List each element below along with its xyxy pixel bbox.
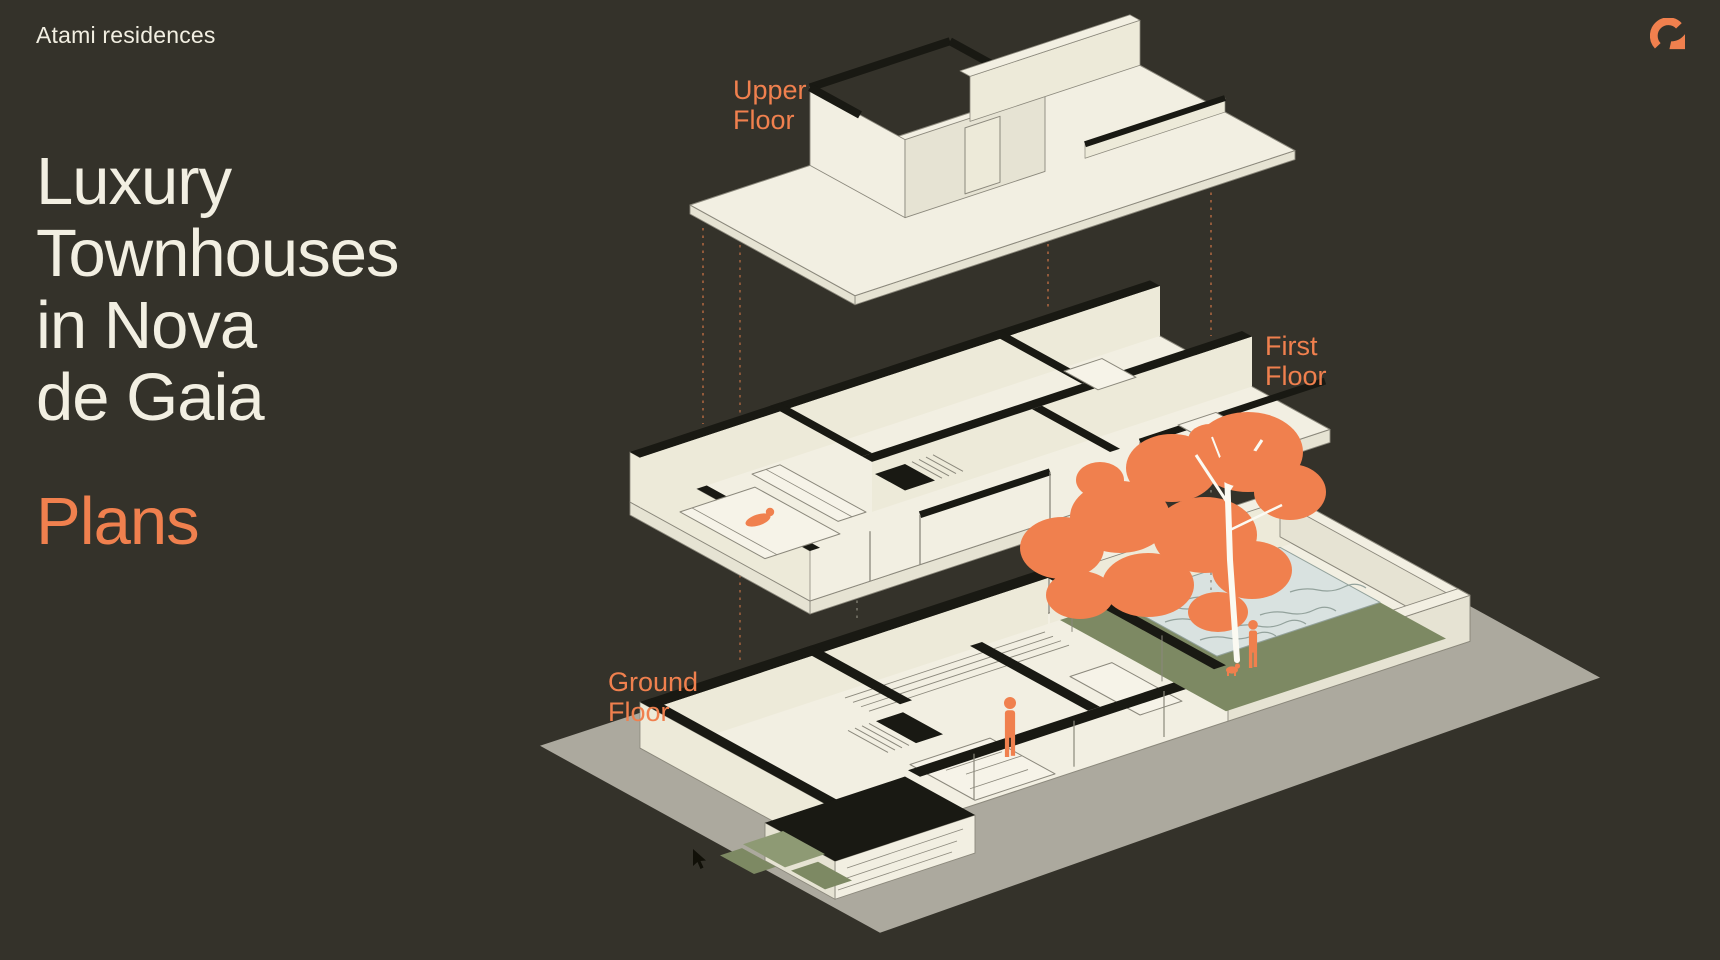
- brand-name: Atami residences: [36, 22, 216, 49]
- floor-label-first: First Floor: [1265, 332, 1327, 391]
- mouse-cursor: [693, 849, 706, 869]
- title-line: Luxury: [36, 146, 398, 218]
- title-line: in Nova: [36, 290, 398, 362]
- title-line: de Gaia: [36, 362, 398, 434]
- floor-plans-illustration: [0, 0, 1720, 960]
- slide-canvas: { "brand": { "name": "Atami residences",…: [0, 0, 1720, 960]
- arc-mark-logo-icon: [1650, 18, 1690, 58]
- page-subtitle: Plans: [36, 486, 199, 558]
- floor-label-ground: Ground Floor: [608, 668, 698, 727]
- upper-floor-plan: [690, 15, 1295, 305]
- floor-label-upper: Upper Floor: [733, 76, 807, 135]
- title-line: Townhouses: [36, 218, 398, 290]
- page-title: Luxury Townhouses in Nova de Gaia: [36, 146, 398, 434]
